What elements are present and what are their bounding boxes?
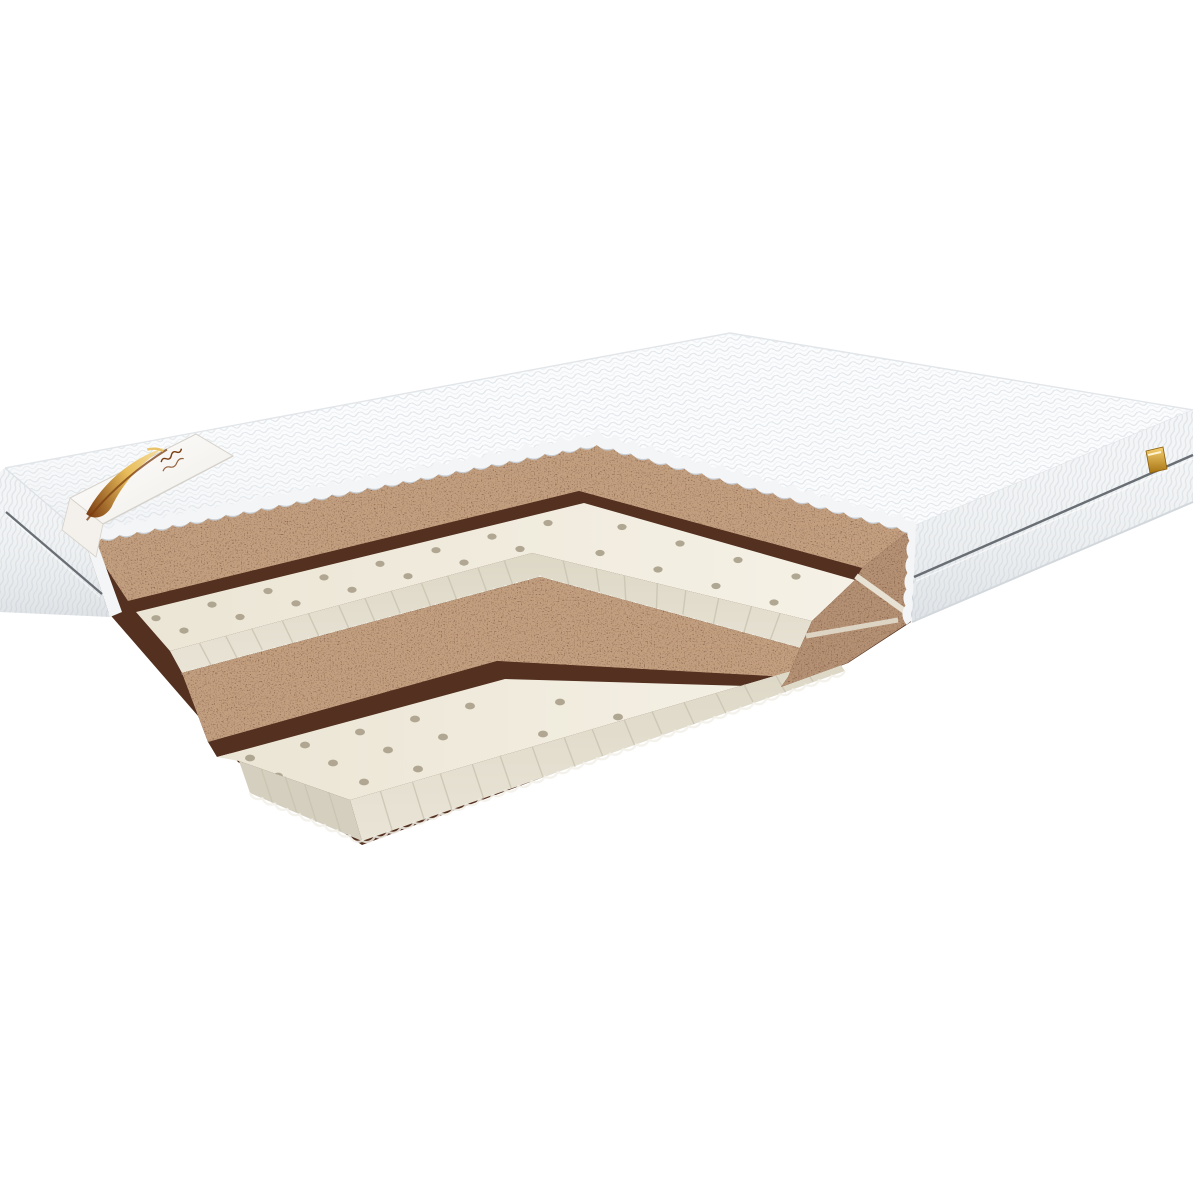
mattress-cutaway-render <box>0 0 1200 1200</box>
gold-side-tag <box>1146 447 1167 473</box>
mattress-product-image <box>0 0 1200 1200</box>
